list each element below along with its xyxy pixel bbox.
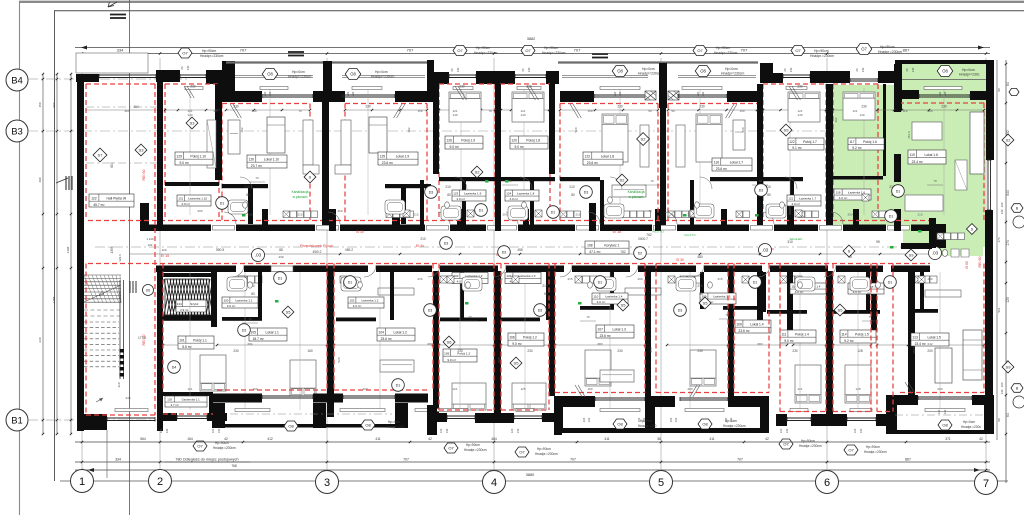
svg-text:520: 520 xyxy=(337,357,341,362)
svg-text:707: 707 xyxy=(240,48,247,53)
svg-text:122: 122 xyxy=(91,196,97,200)
svg-text:Korytarz 1: Korytarz 1 xyxy=(604,243,619,247)
svg-text:S: S xyxy=(971,226,974,231)
svg-text:140: 140 xyxy=(859,428,863,433)
svg-text:Hnadpr.=230cm: Hnadpr.=230cm xyxy=(542,51,566,55)
svg-text:230: 230 xyxy=(699,105,705,109)
svg-text:140: 140 xyxy=(1000,389,1004,394)
svg-text:El 30: El 30 xyxy=(356,230,363,234)
svg-text:Lokal 1.7: Lokal 1.7 xyxy=(730,160,744,164)
svg-text:4.0 m²: 4.0 m² xyxy=(839,196,848,200)
svg-text:351.5: 351.5 xyxy=(907,131,911,139)
svg-text:124: 124 xyxy=(506,192,511,196)
svg-text:140: 140 xyxy=(859,113,864,117)
svg-text:140: 140 xyxy=(187,113,192,117)
svg-text:Hall Piętra I/II: Hall Piętra I/II xyxy=(107,196,127,200)
svg-text:O8: O8 xyxy=(288,424,294,429)
svg-text:80: 80 xyxy=(435,292,439,296)
svg-text:D4: D4 xyxy=(172,366,177,370)
svg-text:50: 50 xyxy=(648,109,652,113)
svg-text:O7: O7 xyxy=(182,51,188,56)
svg-text:70: 70 xyxy=(725,313,729,317)
svg-text:S: S xyxy=(848,248,851,253)
svg-text:245: 245 xyxy=(125,396,130,400)
svg-text:D1: D1 xyxy=(889,215,894,219)
svg-text:867: 867 xyxy=(903,48,910,53)
svg-text:70: 70 xyxy=(468,315,472,319)
svg-text:D3: D3 xyxy=(444,242,449,246)
svg-text:D1: D1 xyxy=(348,281,353,285)
svg-text:200: 200 xyxy=(502,213,507,217)
svg-text:70: 70 xyxy=(586,315,590,319)
svg-text:334: 334 xyxy=(117,48,124,53)
svg-text:159: 159 xyxy=(739,109,744,113)
svg-text:O7: O7 xyxy=(519,450,525,455)
svg-text:707: 707 xyxy=(570,458,576,462)
svg-text:210: 210 xyxy=(433,284,439,288)
svg-text:S3: S3 xyxy=(139,147,145,152)
svg-text:140: 140 xyxy=(456,67,460,72)
svg-text:200: 200 xyxy=(937,387,942,391)
svg-text:140: 140 xyxy=(516,428,520,433)
svg-text:95: 95 xyxy=(876,240,880,244)
svg-text:120: 120 xyxy=(779,428,783,433)
svg-text:215: 215 xyxy=(917,213,922,217)
svg-text:20: 20 xyxy=(855,68,859,72)
svg-text:411: 411 xyxy=(604,437,609,441)
svg-text:Lokal 1.1: Lokal 1.1 xyxy=(265,330,279,334)
svg-text:23.6 m²: 23.6 m² xyxy=(382,161,394,165)
svg-text:23.6 m²: 23.6 m² xyxy=(587,161,599,165)
svg-text:Pokój 1.9: Pokój 1.9 xyxy=(461,138,475,142)
svg-text:D1: D1 xyxy=(220,202,225,206)
svg-text:O7: O7 xyxy=(848,448,854,453)
svg-text:Lokal 1.8: Lokal 1.8 xyxy=(601,154,615,158)
svg-text:120: 120 xyxy=(510,428,514,433)
svg-text:683: 683 xyxy=(427,342,432,346)
svg-text:215: 215 xyxy=(567,277,572,281)
svg-text:D1: D1 xyxy=(551,211,556,215)
svg-text:80: 80 xyxy=(246,193,250,197)
svg-text:O7: O7 xyxy=(795,48,801,53)
svg-text:4.0 m²: 4.0 m² xyxy=(456,197,465,201)
svg-text:117: 117 xyxy=(849,140,854,144)
svg-text:108: 108 xyxy=(587,243,593,247)
svg-text:D3: D3 xyxy=(242,329,247,333)
svg-text:867: 867 xyxy=(905,458,911,462)
svg-text:159: 159 xyxy=(587,109,592,113)
svg-text:114: 114 xyxy=(841,332,846,336)
svg-text:D3: D3 xyxy=(428,309,433,313)
svg-text:Łazienka 1.8: Łazienka 1.8 xyxy=(517,192,534,196)
svg-text:50: 50 xyxy=(671,109,675,113)
svg-text:REI 60: REI 60 xyxy=(978,257,982,268)
svg-text:Lokal 1.5: Lokal 1.5 xyxy=(927,335,941,339)
svg-text:O8: O8 xyxy=(942,423,948,428)
svg-text:O7: O7 xyxy=(697,48,703,53)
svg-text:1: 1 xyxy=(79,476,85,488)
svg-text:70: 70 xyxy=(255,176,259,180)
svg-text:120: 120 xyxy=(161,248,166,252)
svg-text:128: 128 xyxy=(857,349,863,353)
svg-text:D1: D1 xyxy=(479,209,484,213)
svg-text:382: 382 xyxy=(834,117,838,122)
svg-text:105: 105 xyxy=(250,330,256,334)
svg-text:230: 230 xyxy=(268,91,272,96)
svg-text:220: 220 xyxy=(696,91,700,96)
svg-text:121: 121 xyxy=(788,197,793,201)
svg-text:480: 480 xyxy=(697,255,703,259)
svg-text:Hnadpr.=230cm: Hnadpr.=230cm xyxy=(200,54,224,58)
svg-text:768: 768 xyxy=(231,464,237,468)
svg-text:S2: S2 xyxy=(1006,137,1012,142)
svg-text:Hnadpr.=230cm: Hnadpr.=230cm xyxy=(723,424,746,428)
svg-text:160: 160 xyxy=(252,387,257,391)
svg-text:121: 121 xyxy=(852,109,857,113)
svg-text:128: 128 xyxy=(855,387,860,391)
svg-text:Hnadpr=230cm: Hnadpr=230cm xyxy=(721,72,744,76)
svg-text:23.6 m²: 23.6 m² xyxy=(600,334,612,338)
svg-text:411: 411 xyxy=(375,437,380,441)
svg-text:D1: D1 xyxy=(598,281,603,285)
svg-text:230: 230 xyxy=(941,105,947,109)
svg-text:464: 464 xyxy=(124,109,129,113)
svg-text:164: 164 xyxy=(187,437,193,441)
svg-text:120: 120 xyxy=(1000,382,1004,387)
svg-text:D1: D1 xyxy=(888,281,893,285)
svg-text:El 60: El 60 xyxy=(965,261,969,268)
svg-text:220: 220 xyxy=(637,417,641,422)
svg-text:Ro1TTO: Ro1TTO xyxy=(652,230,664,234)
svg-text:459.2: 459.2 xyxy=(313,250,322,254)
svg-text:230: 230 xyxy=(642,417,646,422)
svg-text:80: 80 xyxy=(251,292,255,296)
svg-text:Pokój 1.5: Pokój 1.5 xyxy=(855,332,869,336)
svg-text:Hnadpr.=230cm: Hnadpr.=230cm xyxy=(213,446,236,450)
svg-text:O7: O7 xyxy=(525,48,531,53)
svg-text:220: 220 xyxy=(263,91,267,96)
svg-text:Pokój 1.8: Pokój 1.8 xyxy=(526,138,540,142)
svg-text:684: 684 xyxy=(247,342,252,346)
svg-text:200: 200 xyxy=(247,213,252,217)
svg-text:Kanalizacja: Kanalizacja xyxy=(292,190,309,194)
svg-text:.03: .03 xyxy=(762,248,769,253)
svg-text:230: 230 xyxy=(351,91,355,96)
svg-text:Hnadpr.=230cm: Hnadpr.=230cm xyxy=(535,452,558,456)
svg-text:215: 215 xyxy=(717,277,722,281)
svg-text:Hp=90cm: Hp=90cm xyxy=(544,46,558,50)
svg-text:80: 80 xyxy=(544,292,548,296)
svg-text:520: 520 xyxy=(732,347,736,352)
svg-text:Lokal 1.2: Lokal 1.2 xyxy=(393,330,407,334)
svg-text:Pokój 1.6: Pokój 1.6 xyxy=(863,140,877,144)
svg-text:230: 230 xyxy=(457,349,463,353)
svg-text:Hp=90cm: Hp=90cm xyxy=(476,46,490,50)
svg-text:230: 230 xyxy=(233,105,239,109)
svg-text:20: 20 xyxy=(905,68,909,72)
svg-text:Hnadpr.=230cm: Hnadpr.=230cm xyxy=(474,51,498,55)
svg-text:129.6: 129.6 xyxy=(118,254,122,262)
svg-text:Hnadpr.=230cm: Hnadpr.=230cm xyxy=(464,448,487,452)
svg-text:80: 80 xyxy=(447,193,451,197)
svg-text:230: 230 xyxy=(943,409,947,414)
svg-text:230: 230 xyxy=(190,85,196,89)
svg-text:160: 160 xyxy=(307,349,313,353)
svg-text:S5: S5 xyxy=(838,307,844,312)
svg-text:123: 123 xyxy=(453,192,458,196)
svg-text:Hp=0cm: Hp=0cm xyxy=(725,67,738,71)
svg-text:S3: S3 xyxy=(190,120,196,125)
svg-text:230: 230 xyxy=(792,349,798,353)
svg-text:230: 230 xyxy=(618,91,622,96)
svg-text:Hnadpr=230cm: Hnadpr=230cm xyxy=(638,72,661,76)
svg-text:9.0 m²: 9.0 m² xyxy=(784,339,794,343)
svg-text:159: 159 xyxy=(587,387,592,391)
svg-text:459.2: 459.2 xyxy=(345,248,353,252)
svg-text:210: 210 xyxy=(420,237,426,241)
svg-text:230: 230 xyxy=(365,105,371,109)
svg-text:382: 382 xyxy=(407,127,411,132)
svg-text:Hnadpr=230cm: Hnadpr=230cm xyxy=(288,75,311,79)
svg-text:Kanalizacja: Kanalizacja xyxy=(628,190,645,194)
svg-text:120: 120 xyxy=(211,428,215,433)
svg-text:140: 140 xyxy=(785,428,789,433)
svg-text:Garderoba 1.1: Garderoba 1.1 xyxy=(182,398,200,402)
svg-text:80: 80 xyxy=(699,292,703,296)
svg-text:42: 42 xyxy=(224,437,228,441)
svg-text:104: 104 xyxy=(378,330,384,334)
svg-text:36: 36 xyxy=(657,437,661,441)
svg-text:6: 6 xyxy=(824,477,830,489)
svg-text:140: 140 xyxy=(520,113,525,117)
svg-text:159: 159 xyxy=(417,109,422,113)
svg-text:120: 120 xyxy=(1000,202,1004,207)
svg-text:Hp=90cm: Hp=90cm xyxy=(866,445,880,449)
svg-text:120: 120 xyxy=(511,138,517,142)
svg-text:D3: D3 xyxy=(538,309,543,313)
svg-text:70: 70 xyxy=(298,109,302,113)
svg-text:20: 20 xyxy=(783,68,787,72)
svg-text:220: 220 xyxy=(938,91,942,96)
svg-text:70: 70 xyxy=(248,317,252,321)
svg-text:Hp=0cm: Hp=0cm xyxy=(642,67,655,71)
svg-text:411: 411 xyxy=(709,437,714,441)
svg-text:131: 131 xyxy=(178,197,183,201)
svg-text:100: 100 xyxy=(223,299,228,303)
svg-text:707: 707 xyxy=(407,48,414,53)
svg-text:Hp=90cm: Hp=90cm xyxy=(202,49,216,53)
svg-text:Hp=0cm: Hp=0cm xyxy=(388,420,400,424)
svg-text:140: 140 xyxy=(186,65,190,70)
svg-text:119: 119 xyxy=(903,109,908,113)
svg-text:780 Odległość do miejsc posto: 780 Odległość do miejsc postojowych xyxy=(175,458,238,462)
svg-text:140: 140 xyxy=(1000,209,1004,214)
svg-text:150: 150 xyxy=(38,102,42,107)
svg-text:80: 80 xyxy=(997,88,1001,92)
svg-text:220: 220 xyxy=(937,409,941,414)
svg-text:520: 520 xyxy=(497,357,501,362)
svg-text:110: 110 xyxy=(594,295,599,299)
svg-text:9.2 m²: 9.2 m² xyxy=(852,146,862,150)
svg-text:484: 484 xyxy=(491,437,497,441)
svg-text:S9: S9 xyxy=(1006,364,1012,369)
svg-text:D3: D3 xyxy=(502,251,507,255)
svg-text:Lokal 1.10: Lokal 1.10 xyxy=(264,157,279,161)
svg-text:70: 70 xyxy=(650,179,654,183)
svg-text:4.0 m²: 4.0 m² xyxy=(181,202,190,206)
svg-text:210: 210 xyxy=(244,185,250,189)
svg-text:5: 5 xyxy=(658,477,664,489)
svg-text:Hnadpr.=230: Hnadpr.=230 xyxy=(638,424,657,428)
svg-text:D6: D6 xyxy=(146,289,150,293)
svg-text:140: 140 xyxy=(217,428,221,433)
svg-text:B3: B3 xyxy=(11,126,23,137)
svg-text:9.2 m²: 9.2 m² xyxy=(844,339,854,343)
svg-text:O7: O7 xyxy=(448,446,454,451)
svg-text:220: 220 xyxy=(724,417,728,422)
svg-text:210: 210 xyxy=(445,185,451,189)
svg-text:200: 200 xyxy=(927,109,932,113)
svg-text:140: 140 xyxy=(911,67,915,72)
svg-text:230: 230 xyxy=(861,105,867,109)
svg-text:1358: 1358 xyxy=(52,296,56,303)
svg-text:4.0 m²: 4.0 m² xyxy=(791,202,800,206)
svg-text:Szyb2: Szyb2 xyxy=(190,302,198,306)
svg-text:5.5 m²: 5.5 m² xyxy=(182,345,192,349)
svg-text:1398: 1398 xyxy=(66,246,70,253)
svg-text:351.5: 351.5 xyxy=(912,346,916,354)
svg-text:230: 230 xyxy=(587,417,591,422)
svg-text:Łazienka 1.2: Łazienka 1.2 xyxy=(361,299,378,303)
svg-text:200: 200 xyxy=(927,277,932,281)
svg-text:w pionach: w pionach xyxy=(293,195,308,199)
svg-text:S9: S9 xyxy=(784,127,790,132)
svg-text:120: 120 xyxy=(249,157,255,161)
svg-text:S2: S2 xyxy=(620,177,626,182)
svg-text:121: 121 xyxy=(187,387,192,391)
svg-text:604: 604 xyxy=(52,102,56,107)
svg-text:762: 762 xyxy=(646,233,652,237)
svg-text:80: 80 xyxy=(997,418,1001,422)
svg-text:D1: D1 xyxy=(753,281,758,285)
svg-text:23.7 m²: 23.7 m² xyxy=(251,164,263,168)
svg-text:120: 120 xyxy=(148,243,153,247)
svg-text:122: 122 xyxy=(585,154,591,158)
svg-text:Hnadpr=230cm: Hnadpr=230cm xyxy=(371,75,394,79)
svg-text:O8: O8 xyxy=(267,72,273,77)
svg-text:Pokój 1.2: Pokój 1.2 xyxy=(523,335,537,339)
svg-text:REI 60: REI 60 xyxy=(142,170,146,181)
svg-text:Hp=90cm: Hp=90cm xyxy=(466,443,480,447)
svg-text:S5: S5 xyxy=(514,360,520,365)
svg-text:70: 70 xyxy=(933,179,937,183)
svg-text:Hp=90cm: Hp=90cm xyxy=(537,447,551,451)
svg-text:Hnadpr.=230cm: Hnadpr.=230cm xyxy=(878,50,902,54)
svg-text:707: 707 xyxy=(741,48,748,53)
svg-text:140: 140 xyxy=(797,113,802,117)
svg-text:20: 20 xyxy=(450,68,454,72)
svg-text:80: 80 xyxy=(867,292,871,296)
svg-text:Hp=90cm: Hp=90cm xyxy=(814,49,829,53)
svg-text:D2: D2 xyxy=(638,252,643,256)
svg-text:125: 125 xyxy=(520,387,525,391)
svg-text:B1: B1 xyxy=(11,415,23,426)
svg-text:683: 683 xyxy=(649,347,653,352)
svg-text:9.0 m²: 9.0 m² xyxy=(180,161,190,165)
svg-text:Hp=90cm: Hp=90cm xyxy=(215,441,229,445)
svg-text:200: 200 xyxy=(687,387,692,391)
svg-text:Pokój 1.4: Pokój 1.4 xyxy=(795,332,809,336)
svg-text:200: 200 xyxy=(197,209,202,213)
svg-text:642: 642 xyxy=(927,342,932,346)
svg-text:106: 106 xyxy=(509,335,515,339)
svg-text:El 30: El 30 xyxy=(676,258,683,262)
svg-text:2.7 m²: 2.7 m² xyxy=(171,403,179,407)
svg-text:762: 762 xyxy=(620,250,626,254)
svg-text:D1: D1 xyxy=(396,384,401,388)
svg-text:18.7 m²: 18.7 m² xyxy=(253,337,265,341)
svg-text:334: 334 xyxy=(115,458,121,462)
svg-text:42: 42 xyxy=(428,437,432,441)
svg-text:23.6 m²: 23.6 m² xyxy=(716,167,728,171)
svg-text:707: 707 xyxy=(574,48,581,53)
svg-text:23.4 m²: 23.4 m² xyxy=(915,342,927,346)
svg-text:3880: 3880 xyxy=(526,473,534,477)
svg-text:Hp=90cm: Hp=90cm xyxy=(801,439,815,443)
svg-text:Lokal 1.9: Lokal 1.9 xyxy=(396,154,410,158)
svg-text:4.0 m²: 4.0 m² xyxy=(597,300,606,304)
svg-text:O8: O8 xyxy=(350,72,356,77)
svg-text:Łazienka 1.1: Łazienka 1.1 xyxy=(235,299,252,303)
svg-text:Pokój 1.1: Pokój 1.1 xyxy=(193,338,207,342)
svg-text:200: 200 xyxy=(637,277,642,281)
svg-text:310: 310 xyxy=(117,382,121,387)
svg-text:200: 200 xyxy=(197,277,202,281)
svg-text:S: S xyxy=(309,174,312,179)
svg-text:390.5: 390.5 xyxy=(216,248,225,252)
svg-text:129: 129 xyxy=(176,154,182,158)
svg-text:70: 70 xyxy=(508,179,512,183)
svg-text:683: 683 xyxy=(597,342,602,346)
svg-text:120: 120 xyxy=(1006,297,1010,303)
svg-text:101: 101 xyxy=(179,338,185,342)
svg-text:210: 210 xyxy=(697,284,703,288)
svg-text:O8: O8 xyxy=(700,69,706,74)
svg-text:D3: D3 xyxy=(429,191,434,195)
svg-text:220: 220 xyxy=(669,417,673,422)
svg-text:9.0 m²: 9.0 m² xyxy=(515,145,525,149)
svg-text:Lokal 1.3: Lokal 1.3 xyxy=(612,327,626,331)
svg-text:S6: S6 xyxy=(447,339,453,344)
svg-text:220: 220 xyxy=(582,417,586,422)
svg-text:200: 200 xyxy=(362,387,367,391)
svg-text:70: 70 xyxy=(758,179,762,183)
svg-text:683: 683 xyxy=(757,342,762,346)
svg-text:220: 220 xyxy=(613,91,617,96)
svg-text:111: 111 xyxy=(781,332,786,336)
svg-text:Przedsionek P.poż.: Przedsionek P.poż. xyxy=(300,243,334,248)
svg-text:70: 70 xyxy=(488,109,492,113)
svg-text:210: 210 xyxy=(569,185,575,189)
svg-text:215: 215 xyxy=(417,277,422,281)
svg-text:520: 520 xyxy=(574,127,578,132)
svg-text:160: 160 xyxy=(251,109,256,113)
svg-text:23.6 m²: 23.6 m² xyxy=(381,337,393,341)
svg-text:El 15: El 15 xyxy=(161,254,169,258)
svg-text:200: 200 xyxy=(497,277,502,281)
svg-text:230: 230 xyxy=(697,349,703,353)
svg-text:Hnadpr=230c: Hnadpr=230c xyxy=(959,73,980,77)
